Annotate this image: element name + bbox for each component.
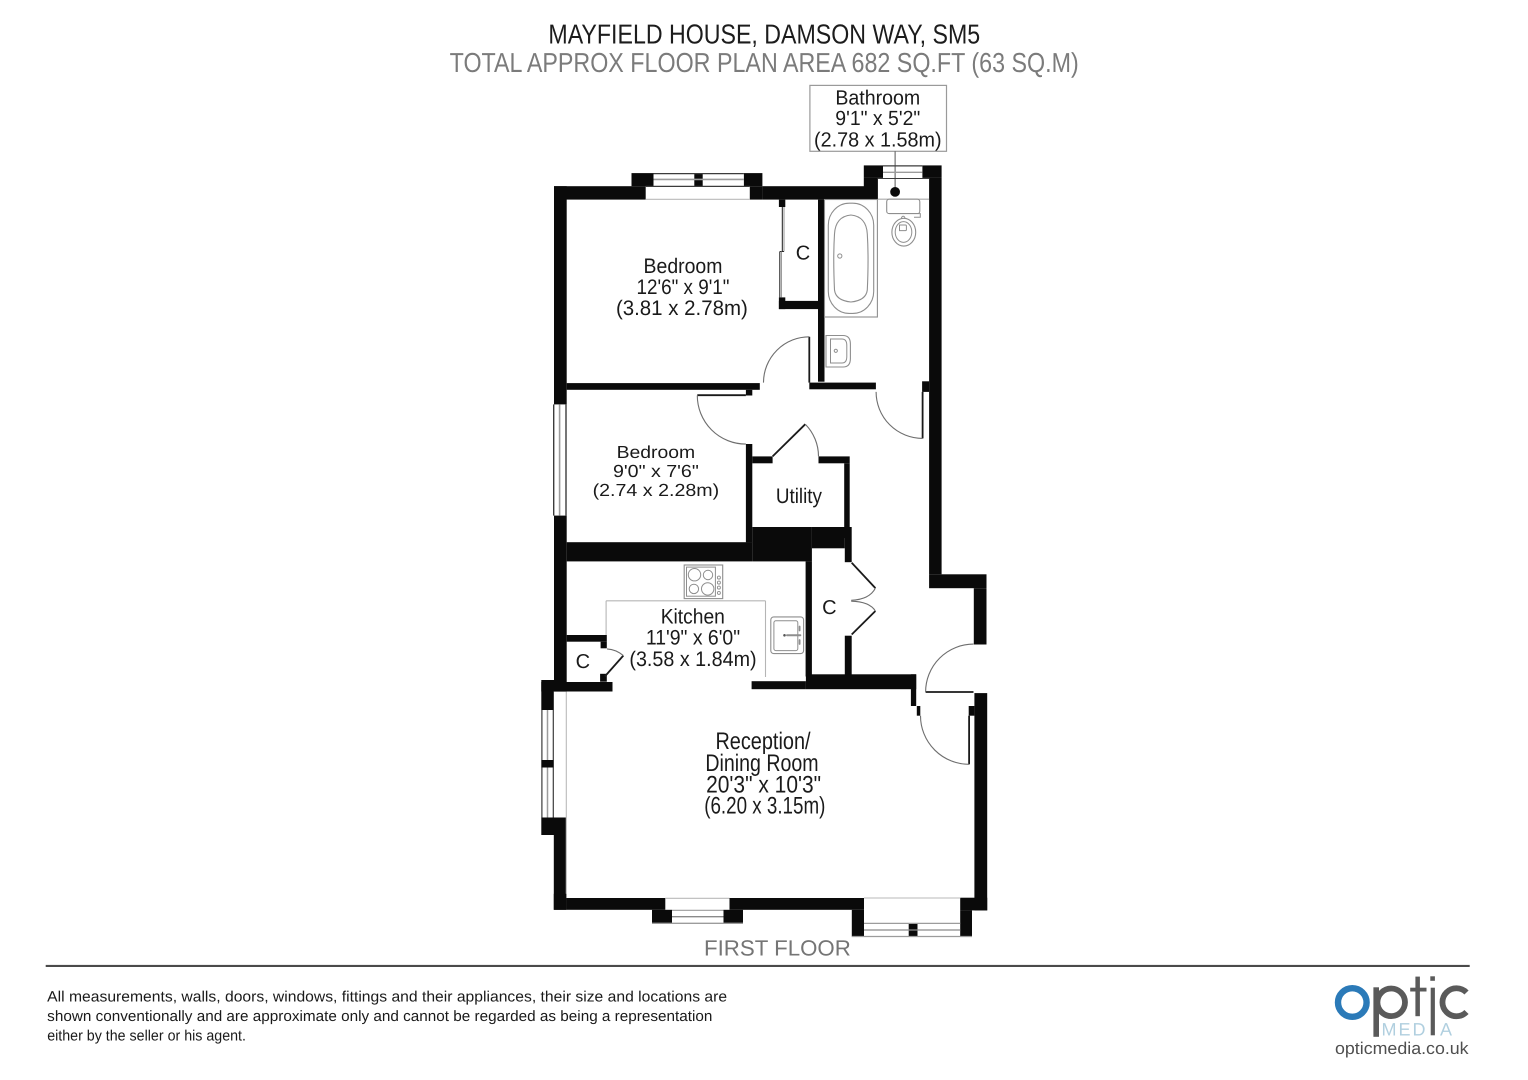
svg-text:MAYFIELD HOUSE, DAMSON WAY, SM: MAYFIELD HOUSE, DAMSON WAY, SM5 xyxy=(548,19,980,50)
svg-text:9'1" x 5'2": 9'1" x 5'2" xyxy=(835,107,920,130)
svg-text:Utility: Utility xyxy=(776,485,823,508)
svg-text:(3.58 x 1.84m): (3.58 x 1.84m) xyxy=(629,648,756,671)
svg-text:11'9" x 6'0": 11'9" x 6'0" xyxy=(646,627,740,650)
svg-text:(3.81 x 2.78m): (3.81 x 2.78m) xyxy=(616,297,748,320)
svg-text:C: C xyxy=(796,242,810,264)
svg-text:C: C xyxy=(576,651,590,673)
svg-text:FIRST FLOOR: FIRST FLOOR xyxy=(704,936,851,961)
svg-text:Kitchen: Kitchen xyxy=(661,606,725,629)
svg-text:All measurements, walls, doors: All measurements, walls, doors, windows,… xyxy=(47,989,727,1006)
svg-text:opticmedia.co.uk: opticmedia.co.uk xyxy=(1335,1039,1469,1058)
svg-text:C: C xyxy=(822,597,836,619)
svg-text:A: A xyxy=(1440,1019,1452,1039)
svg-text:Bedroom: Bedroom xyxy=(617,442,696,462)
svg-text:shown conventionally and are a: shown conventionally and are approximate… xyxy=(47,1008,712,1025)
svg-text:Bedroom: Bedroom xyxy=(644,255,723,278)
svg-text:Bathroom: Bathroom xyxy=(835,86,920,109)
svg-text:12'6" x 9'1": 12'6" x 9'1" xyxy=(637,276,730,299)
svg-text:(2.78 x 1.58m): (2.78 x 1.58m) xyxy=(814,129,942,152)
svg-text:9'0" x 7'6": 9'0" x 7'6" xyxy=(613,461,699,481)
svg-text:(2.74 x 2.28m): (2.74 x 2.28m) xyxy=(593,480,720,500)
svg-text:(6.20 x 3.15m): (6.20 x 3.15m) xyxy=(704,793,825,820)
svg-text:MED: MED xyxy=(1382,1019,1428,1039)
svg-text:either by the seller or his ag: either by the seller or his agent. xyxy=(47,1028,246,1045)
svg-text:TOTAL APPROX FLOOR PLAN AREA 6: TOTAL APPROX FLOOR PLAN AREA 682 SQ.FT (… xyxy=(450,47,1079,78)
